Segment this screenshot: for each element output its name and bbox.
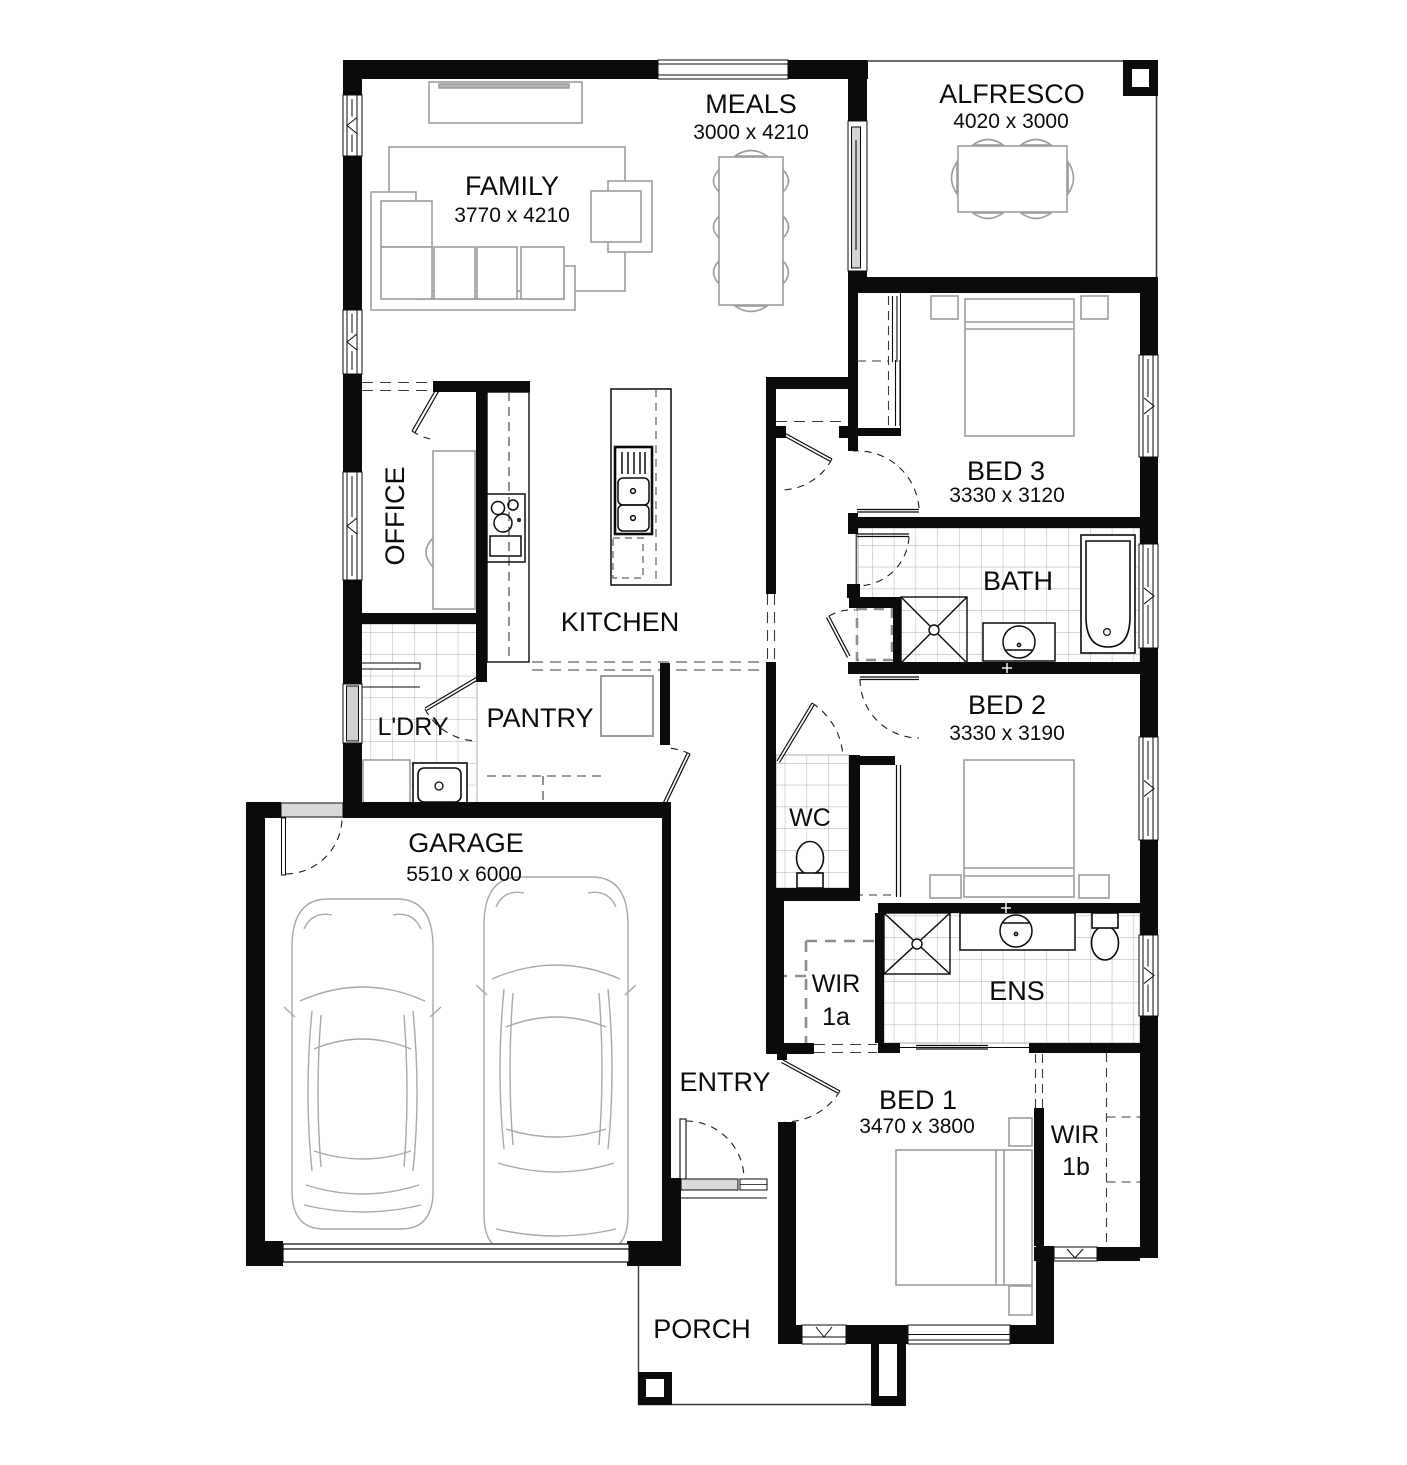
svg-text:ALFRESCO: ALFRESCO [939, 79, 1085, 109]
svg-text:WC: WC [789, 804, 831, 832]
svg-text:PORCH: PORCH [653, 1314, 751, 1344]
svg-text:ENS: ENS [989, 976, 1045, 1006]
svg-text:3330 x 3190: 3330 x 3190 [949, 722, 1065, 745]
svg-text:WIR: WIR [1051, 1121, 1100, 1149]
svg-text:3000 x 4210: 3000 x 4210 [693, 121, 809, 144]
svg-text:1b: 1b [1062, 1153, 1090, 1181]
svg-text:FAMILY: FAMILY [465, 171, 559, 201]
svg-text:BED 3: BED 3 [967, 456, 1045, 486]
svg-text:1a: 1a [822, 1003, 850, 1031]
svg-text:L'DRY: L'DRY [377, 713, 448, 741]
svg-text:PANTRY: PANTRY [486, 703, 593, 733]
svg-text:GARAGE: GARAGE [408, 828, 524, 858]
svg-text:3470 x 3800: 3470 x 3800 [859, 1115, 975, 1138]
svg-text:WIR: WIR [812, 970, 861, 998]
svg-text:BATH: BATH [983, 566, 1053, 596]
svg-text:MEALS: MEALS [705, 89, 797, 119]
svg-text:3770 x 4210: 3770 x 4210 [454, 204, 570, 227]
svg-text:5510 x 6000: 5510 x 6000 [406, 863, 522, 886]
svg-text:KITCHEN: KITCHEN [561, 607, 680, 637]
svg-text:BED 2: BED 2 [968, 690, 1046, 720]
svg-text:BED 1: BED 1 [879, 1085, 957, 1115]
svg-text:4020 x 3000: 4020 x 3000 [953, 110, 1069, 133]
svg-text:3330 x 3120: 3330 x 3120 [949, 484, 1065, 507]
svg-text:OFFICE: OFFICE [380, 467, 410, 566]
svg-text:ENTRY: ENTRY [679, 1067, 770, 1097]
